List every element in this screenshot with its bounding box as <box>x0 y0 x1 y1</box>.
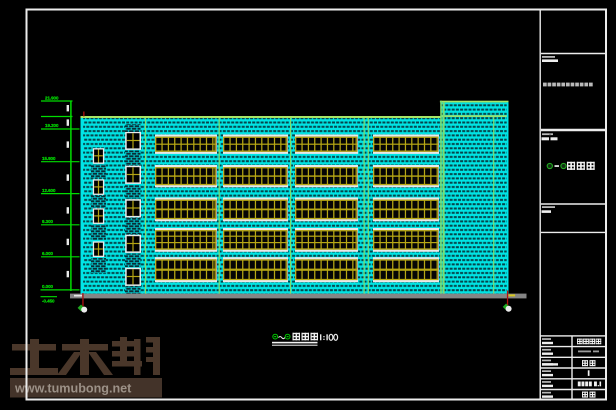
svg-text:www.tumubong.net: www.tumubong.net <box>14 382 132 396</box>
svg-text:0.000: 0.000 <box>42 284 54 289</box>
svg-text:21.900: 21.900 <box>45 95 59 100</box>
svg-text:-0.450: -0.450 <box>42 298 55 303</box>
svg-text:12.600: 12.600 <box>42 188 56 193</box>
svg-text:15.900: 15.900 <box>42 156 56 161</box>
svg-text:6.000: 6.000 <box>42 251 54 256</box>
svg-text:9.300: 9.300 <box>42 219 54 224</box>
svg-text:19.200: 19.200 <box>45 123 59 128</box>
